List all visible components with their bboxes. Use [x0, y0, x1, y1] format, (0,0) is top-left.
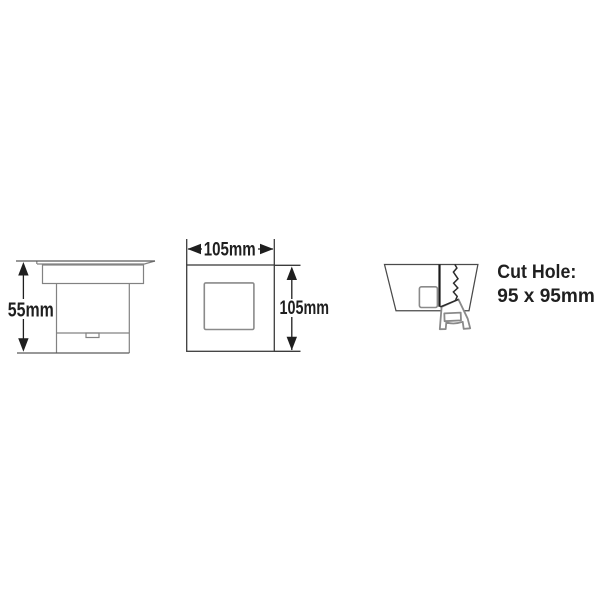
- svg-text:Cut Hole:: Cut Hole:: [497, 262, 576, 283]
- svg-text:105mm: 105mm: [204, 239, 256, 261]
- svg-text:105mm: 105mm: [280, 298, 330, 319]
- svg-text:95 x 95mm: 95 x 95mm: [497, 286, 595, 307]
- svg-text:55mm: 55mm: [8, 300, 54, 322]
